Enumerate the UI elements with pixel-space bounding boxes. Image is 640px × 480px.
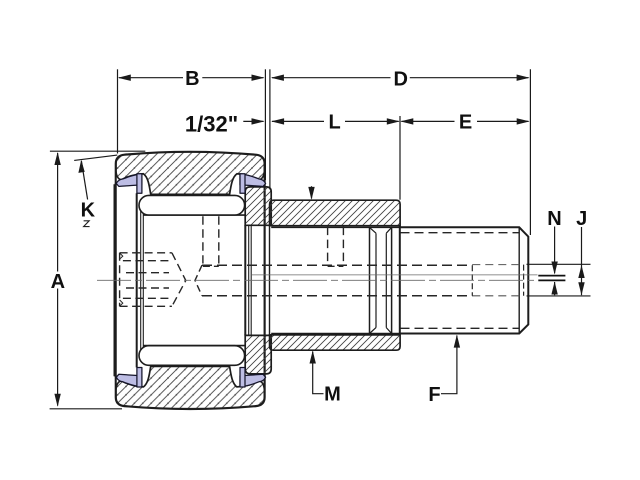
svg-text:J: J [576, 208, 587, 230]
svg-text:B: B [185, 68, 199, 90]
svg-text:L: L [328, 112, 340, 134]
svg-text:D: D [393, 68, 407, 90]
svg-text:N: N [547, 208, 561, 230]
svg-text:M: M [324, 383, 341, 405]
svg-text:K: K [81, 200, 96, 222]
svg-text:1/32": 1/32" [185, 112, 238, 137]
svg-text:E: E [459, 112, 472, 134]
svg-text:F: F [428, 384, 440, 406]
svg-text:A: A [51, 271, 65, 293]
